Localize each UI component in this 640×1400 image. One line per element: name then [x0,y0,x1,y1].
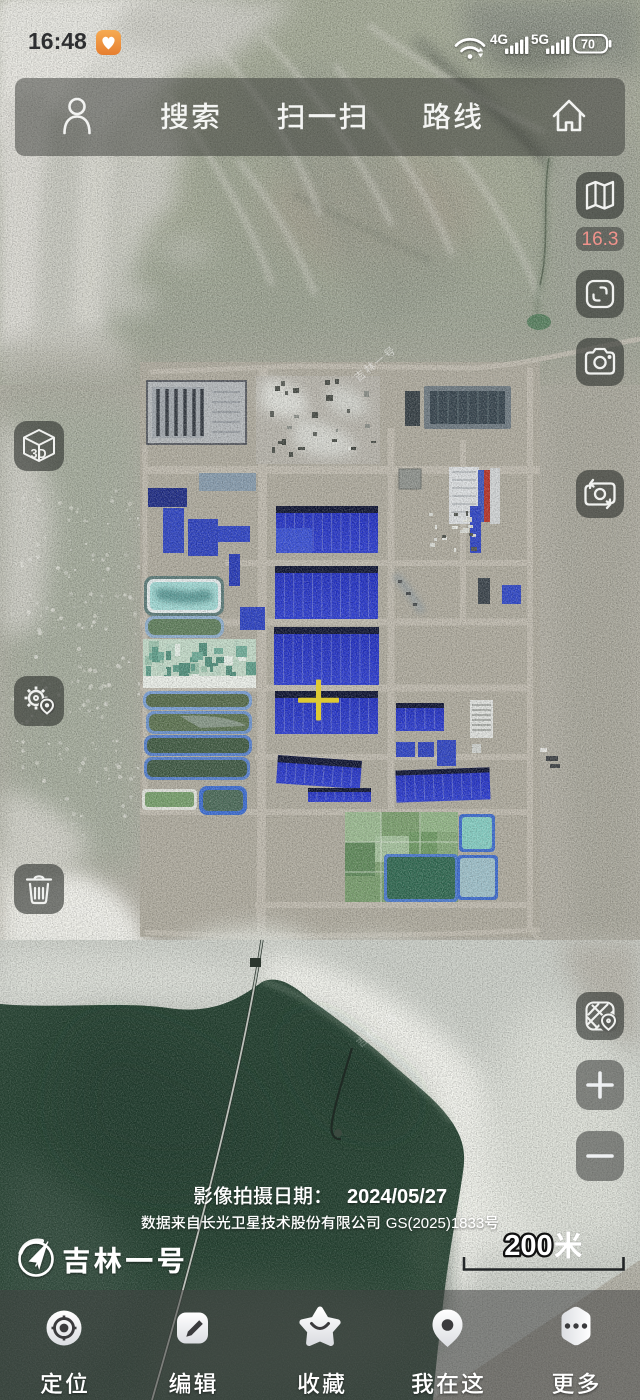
svg-text:2024/05/27: 2024/05/27 [347,1186,447,1208]
svg-text:16.3: 16.3 [582,229,619,250]
svg-text:16:48: 16:48 [28,28,87,54]
svg-text:5G: 5G [531,32,549,47]
svg-text:3D: 3D [31,447,47,461]
svg-text:200: 200 [504,1230,552,1262]
svg-text:70: 70 [581,38,595,52]
svg-text:4G: 4G [490,32,508,47]
svg-text:GS(2025)1833: GS(2025)1833 [386,1215,484,1232]
